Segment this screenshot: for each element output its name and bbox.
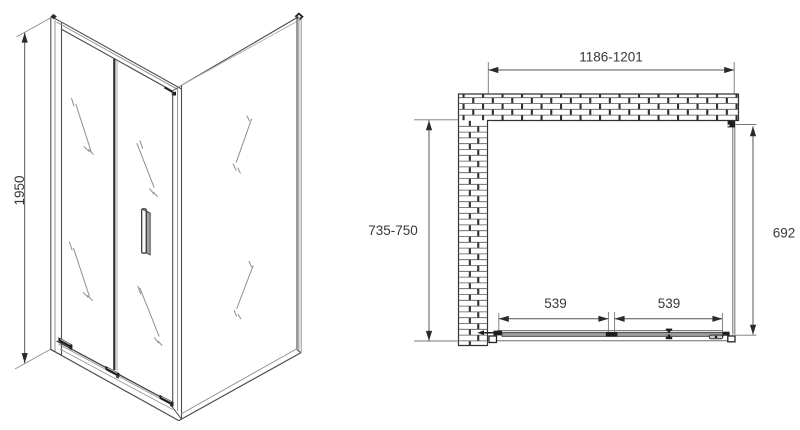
- svg-text:735-750: 735-750: [368, 223, 418, 238]
- svg-text:1950: 1950: [12, 175, 27, 205]
- svg-text:1186-1201: 1186-1201: [579, 49, 643, 64]
- svg-text:539: 539: [544, 296, 567, 311]
- svg-text:539: 539: [658, 296, 681, 311]
- svg-text:692: 692: [773, 225, 796, 240]
